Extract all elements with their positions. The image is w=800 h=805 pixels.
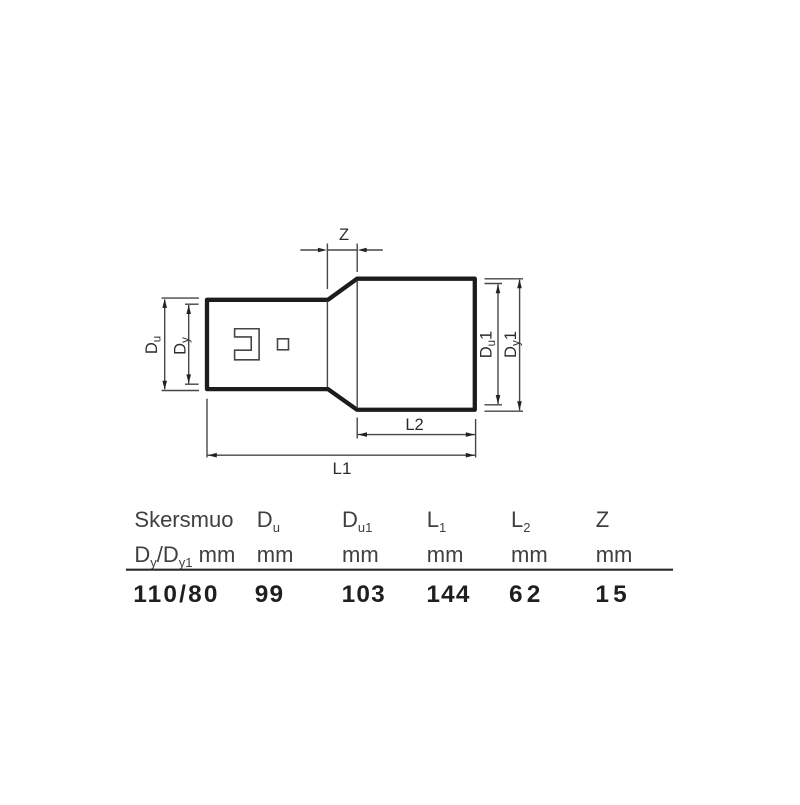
- svg-text:62: 62: [509, 581, 545, 608]
- svg-text:mm: mm: [511, 542, 548, 567]
- svg-text:99: 99: [255, 581, 285, 608]
- svg-text:mm: mm: [427, 542, 464, 567]
- svg-text:Skersmuo: Skersmuo: [134, 507, 233, 532]
- svg-text:L1: L1: [333, 459, 352, 478]
- svg-text:L2: L2: [405, 416, 423, 434]
- svg-text:Z: Z: [596, 507, 609, 532]
- svg-text:Z: Z: [339, 226, 349, 244]
- svg-text:103: 103: [342, 581, 386, 608]
- svg-text:mm: mm: [342, 542, 379, 567]
- svg-text:mm: mm: [596, 542, 633, 567]
- svg-text:110/80: 110/80: [133, 581, 219, 608]
- svg-text:15: 15: [595, 581, 631, 608]
- svg-text:mm: mm: [257, 542, 294, 567]
- svg-text:144: 144: [426, 581, 470, 608]
